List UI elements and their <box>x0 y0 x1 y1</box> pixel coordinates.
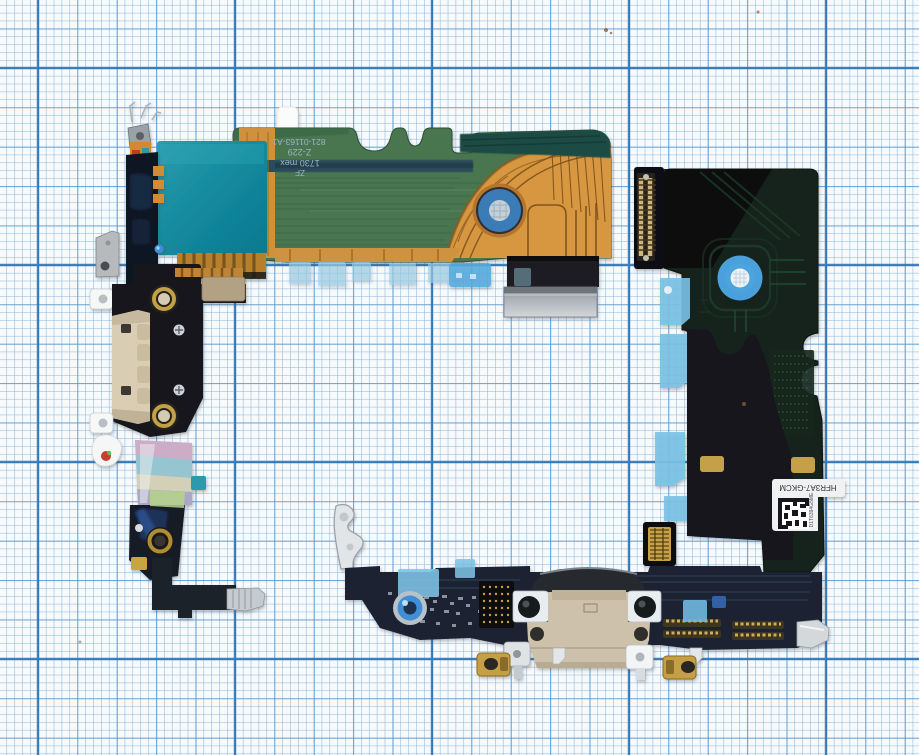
svg-text:HFR3A7-GKCM: HFR3A7-GKCM <box>779 483 837 492</box>
svg-text:Z-229: Z-229 <box>288 147 312 157</box>
svg-text:ZF: ZF <box>295 168 305 177</box>
svg-text:D1T6394G5ME: D1T6394G5ME <box>809 492 815 527</box>
svg-text:821-01163-A1: 821-01163-A1 <box>272 137 326 147</box>
svg-text:1730 mex: 1730 mex <box>280 158 320 168</box>
